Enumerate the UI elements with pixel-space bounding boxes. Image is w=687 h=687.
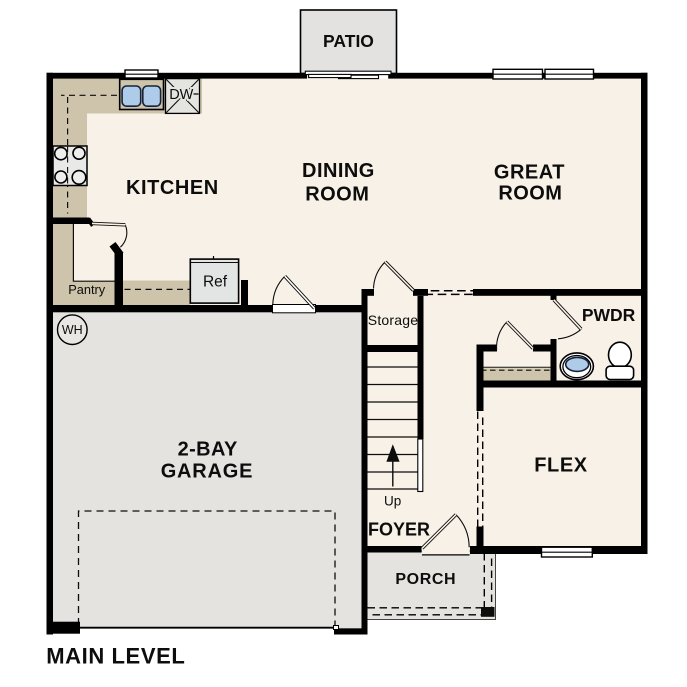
svg-text:Storage: Storage — [368, 312, 418, 328]
svg-text:GREAT: GREAT — [494, 162, 565, 184]
svg-text:KITCHEN: KITCHEN — [126, 177, 219, 199]
svg-text:Up: Up — [384, 494, 401, 509]
svg-text:Ref: Ref — [203, 273, 228, 290]
svg-text:MAIN LEVEL: MAIN LEVEL — [46, 643, 185, 668]
svg-text:DW: DW — [169, 87, 193, 103]
svg-text:ROOM: ROOM — [498, 182, 562, 204]
svg-text:DINING: DINING — [302, 160, 375, 182]
svg-text:WH: WH — [62, 323, 83, 337]
svg-text:Pantry: Pantry — [68, 282, 106, 297]
svg-text:ROOM: ROOM — [305, 184, 369, 206]
svg-text:FOYER: FOYER — [368, 519, 430, 539]
svg-text:PORCH: PORCH — [395, 571, 456, 588]
svg-text:PATIO: PATIO — [323, 31, 374, 51]
svg-text:FLEX: FLEX — [534, 454, 588, 476]
svg-text:GARAGE: GARAGE — [161, 460, 254, 482]
svg-text:PWDR: PWDR — [582, 305, 636, 325]
svg-text:2-BAY: 2-BAY — [178, 438, 238, 460]
